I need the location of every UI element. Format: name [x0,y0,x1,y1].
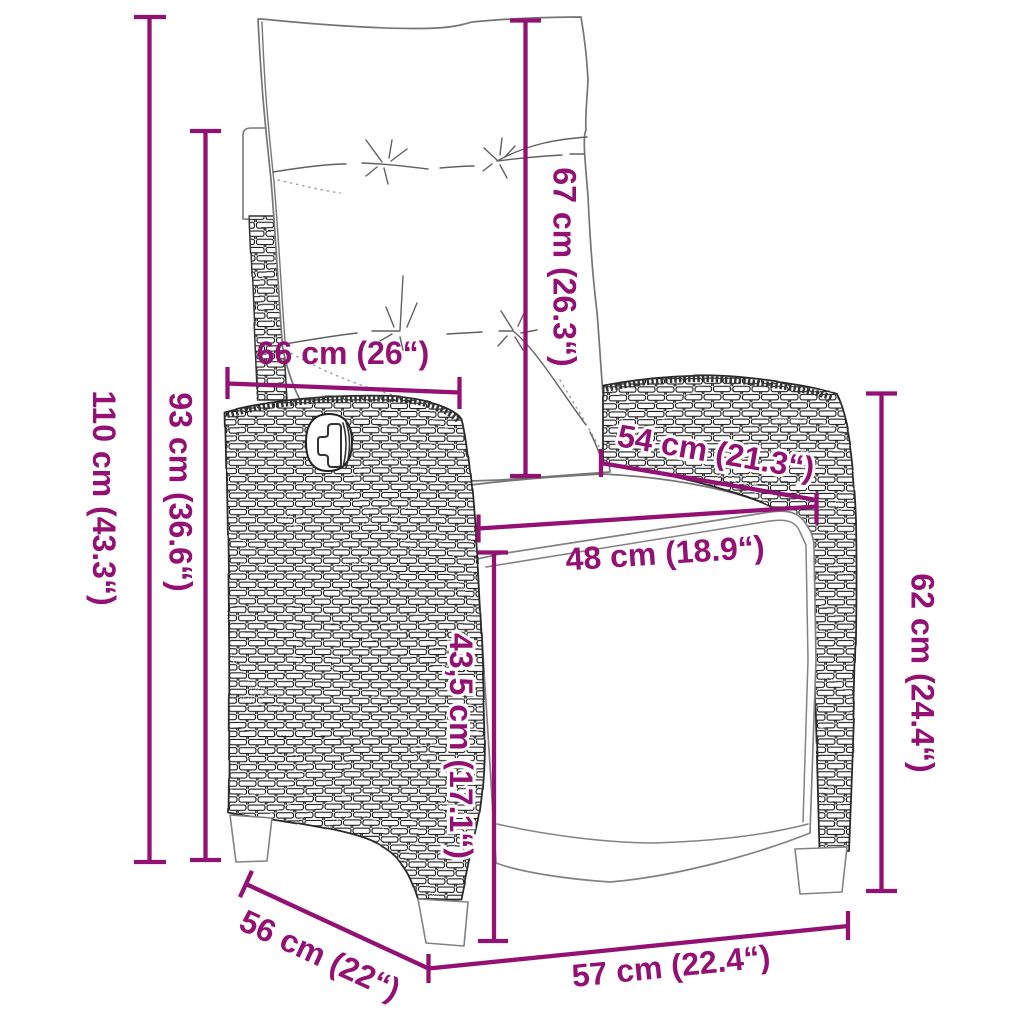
svg-text:62 cm (24.4“): 62 cm (24.4“) [905,573,941,772]
svg-text:43,5 cm (17.1“): 43,5 cm (17.1“) [443,633,479,859]
svg-text:66 cm (26“): 66 cm (26“) [257,335,430,371]
svg-text:110 cm (43.3“): 110 cm (43.3“) [86,390,122,605]
svg-text:67 cm (26.3“): 67 cm (26.3“) [547,167,583,366]
svg-text:93 cm (36.6“): 93 cm (36.6“) [163,392,199,591]
